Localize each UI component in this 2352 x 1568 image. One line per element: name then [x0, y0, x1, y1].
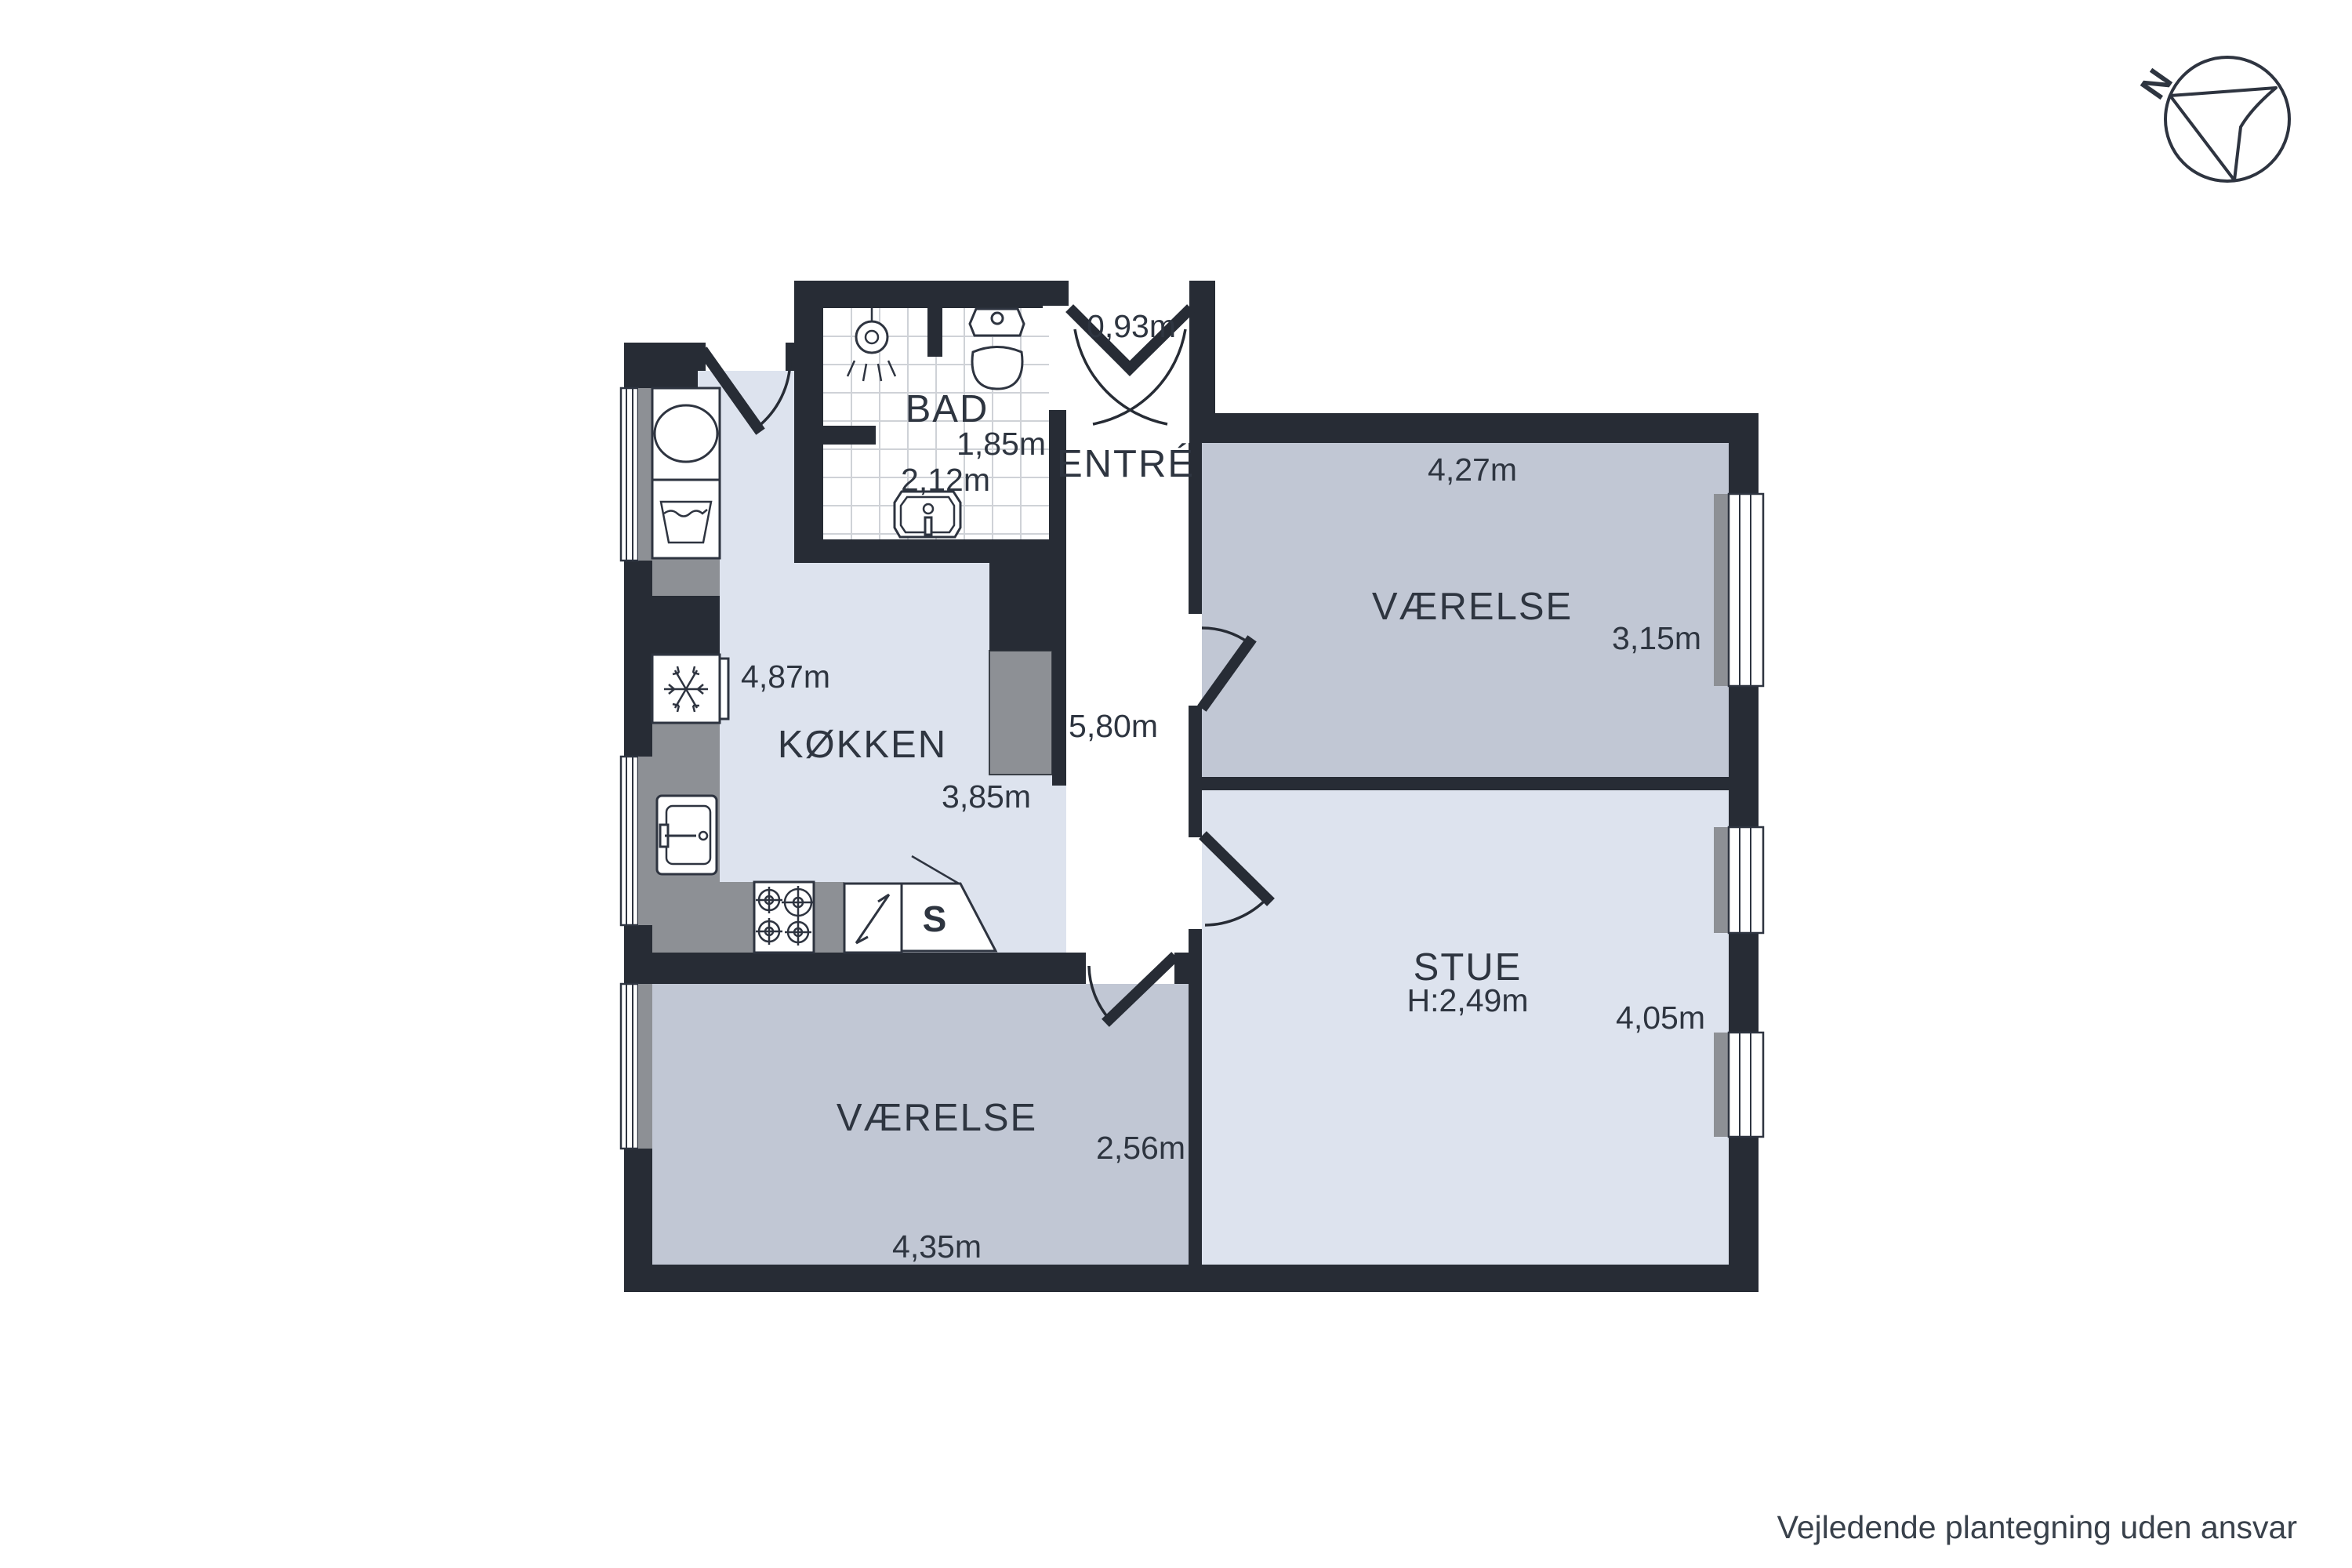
floor-plan: S BAD 1,85m 2,12m ENTRÉ: [0, 0, 2352, 1568]
floor-plan-page: S BAD 1,85m 2,12m ENTRÉ: [0, 0, 2352, 1568]
freezer-icon: [652, 655, 728, 723]
compass-icon: N: [2132, 57, 2289, 181]
vaerelse-top-depth-dim: 3,15m: [1612, 620, 1701, 656]
vaerelse-bottom-label: VÆRELSE: [837, 1097, 1037, 1139]
kitchen-sink-icon: [657, 796, 717, 874]
vaerelse-top-width-dim: 4,27m: [1428, 452, 1517, 488]
laundry-tub-icon: [652, 480, 720, 558]
dishwasher-lightning-icon: [844, 884, 902, 953]
kokken-length-dim: 4,87m: [741, 659, 830, 695]
washing-machine-icon: [652, 388, 720, 480]
cabinet-s-label: S: [923, 898, 947, 939]
room-entre-vestibule: [1049, 306, 1189, 563]
entre-door-dim: 0,93m: [1087, 308, 1176, 344]
stove-icon: [754, 882, 815, 953]
bad-width-dim: 1,85m: [956, 426, 1046, 462]
bad-depth-dim: 2,12m: [901, 462, 990, 498]
stue-depth-dim: 4,05m: [1616, 1000, 1705, 1036]
window-vaerelse-top: [1714, 494, 1763, 686]
entre-label: ENTRÉ: [1057, 443, 1195, 485]
vaerelse-bottom-width-dim: 4,35m: [892, 1229, 982, 1265]
window-stue-upper: [1714, 827, 1763, 933]
vaerelse-bottom-depth-dim: 2,56m: [1096, 1130, 1185, 1166]
vaerelse-top-label: VÆRELSE: [1372, 586, 1573, 628]
window-kitchen-top: [621, 388, 652, 561]
bad-label: BAD: [906, 388, 989, 430]
room-entre-corridor: [1066, 563, 1189, 953]
bathroom-sink-icon: [895, 492, 960, 537]
window-stue-lower: [1714, 1033, 1763, 1137]
stue-ceiling-dim: H:2,49m: [1407, 982, 1529, 1018]
hall-cabinet: [989, 651, 1052, 775]
window-kitchen-bottom: [621, 757, 652, 925]
kokken-label: KØKKEN: [778, 724, 947, 766]
window-vaerelse-bottom: [621, 984, 652, 1149]
disclaimer-text: Vejledende plantegning uden ansvar: [1777, 1509, 2297, 1545]
entre-length-dim: 5,80m: [1069, 708, 1158, 744]
kokken-width-dim: 3,85m: [942, 779, 1031, 815]
